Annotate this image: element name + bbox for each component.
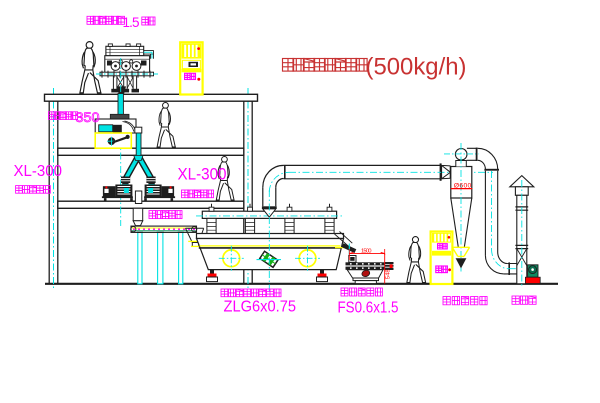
svg-text:XL-300: XL-300: [178, 166, 227, 184]
svg-text:1500: 1500: [361, 249, 372, 255]
svg-text:1.5: 1.5: [123, 15, 140, 30]
svg-text:(500kg/h): (500kg/h): [366, 54, 467, 81]
svg-text:FS0.6x1.5: FS0.6x1.5: [338, 300, 399, 317]
svg-text:ZLG6x0.75: ZLG6x0.75: [224, 299, 297, 316]
svg-text:548: 548: [385, 269, 391, 280]
svg-text:350: 350: [76, 109, 100, 125]
svg-text:XL-300: XL-300: [14, 163, 63, 180]
